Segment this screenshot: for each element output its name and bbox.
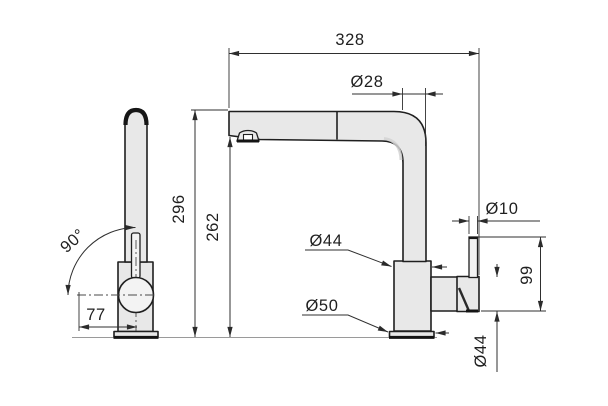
front-view: [229, 112, 479, 338]
dim-total-height-label: 296: [170, 194, 188, 223]
dim-body-diameter-label: Ø44: [310, 232, 343, 250]
faucet-dimension-drawing: 328 Ø28 296 262 90° 77 Ø44: [0, 0, 608, 406]
dim-lever-rod-diameter: Ø10: [452, 200, 540, 234]
faucet-body: [394, 261, 431, 331]
dim-base-diameter-label: Ø50: [306, 297, 339, 315]
control-lever-side: [132, 233, 141, 278]
dim-overall-projection: 328: [229, 31, 479, 275]
aerator-outlet: [244, 135, 253, 141]
dim-spout-tube-diameter-label: Ø28: [351, 73, 384, 91]
lever-rod: [469, 237, 478, 278]
dim-lever-rod-diameter-label: Ø10: [486, 200, 519, 218]
side-view: [77, 109, 159, 337]
lever-mount: [431, 277, 458, 311]
dim-outlet-offset-label: 77: [86, 306, 106, 324]
dim-lever-body-diameter-label: Ø44: [472, 335, 490, 368]
dim-outlet-height-label: 262: [204, 212, 222, 241]
dim-lever-assembly-height-label: 99: [518, 265, 536, 285]
dim-lever-assembly-height: 99: [478, 237, 546, 311]
dim-outlet-height: 262: [204, 137, 230, 337]
dim-overall-projection-label: 328: [335, 31, 364, 49]
